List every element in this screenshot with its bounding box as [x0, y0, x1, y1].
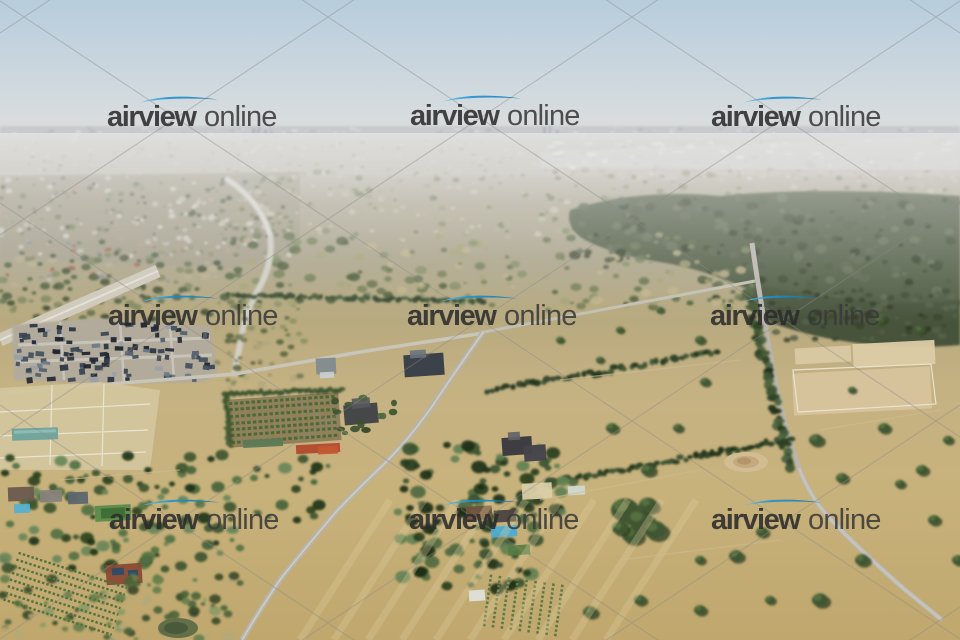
svg-text:airview: airview [711, 101, 801, 133]
svg-text:airview: airview [107, 101, 197, 133]
svg-text:airview: airview [711, 504, 801, 536]
svg-text:online: online [205, 300, 278, 332]
svg-text:airview: airview [710, 300, 800, 332]
svg-text:online: online [204, 101, 277, 133]
svg-text:online: online [507, 100, 580, 132]
svg-text:online: online [506, 504, 579, 536]
svg-text:airview: airview [108, 300, 198, 332]
svg-text:online: online [807, 300, 880, 332]
svg-text:online: online [206, 504, 279, 536]
svg-text:airview: airview [409, 504, 499, 536]
svg-text:airview: airview [410, 100, 500, 132]
svg-text:airview: airview [109, 504, 199, 536]
svg-text:online: online [808, 504, 881, 536]
svg-text:online: online [504, 300, 577, 332]
svg-text:online: online [808, 101, 881, 133]
svg-text:airview: airview [407, 300, 497, 332]
